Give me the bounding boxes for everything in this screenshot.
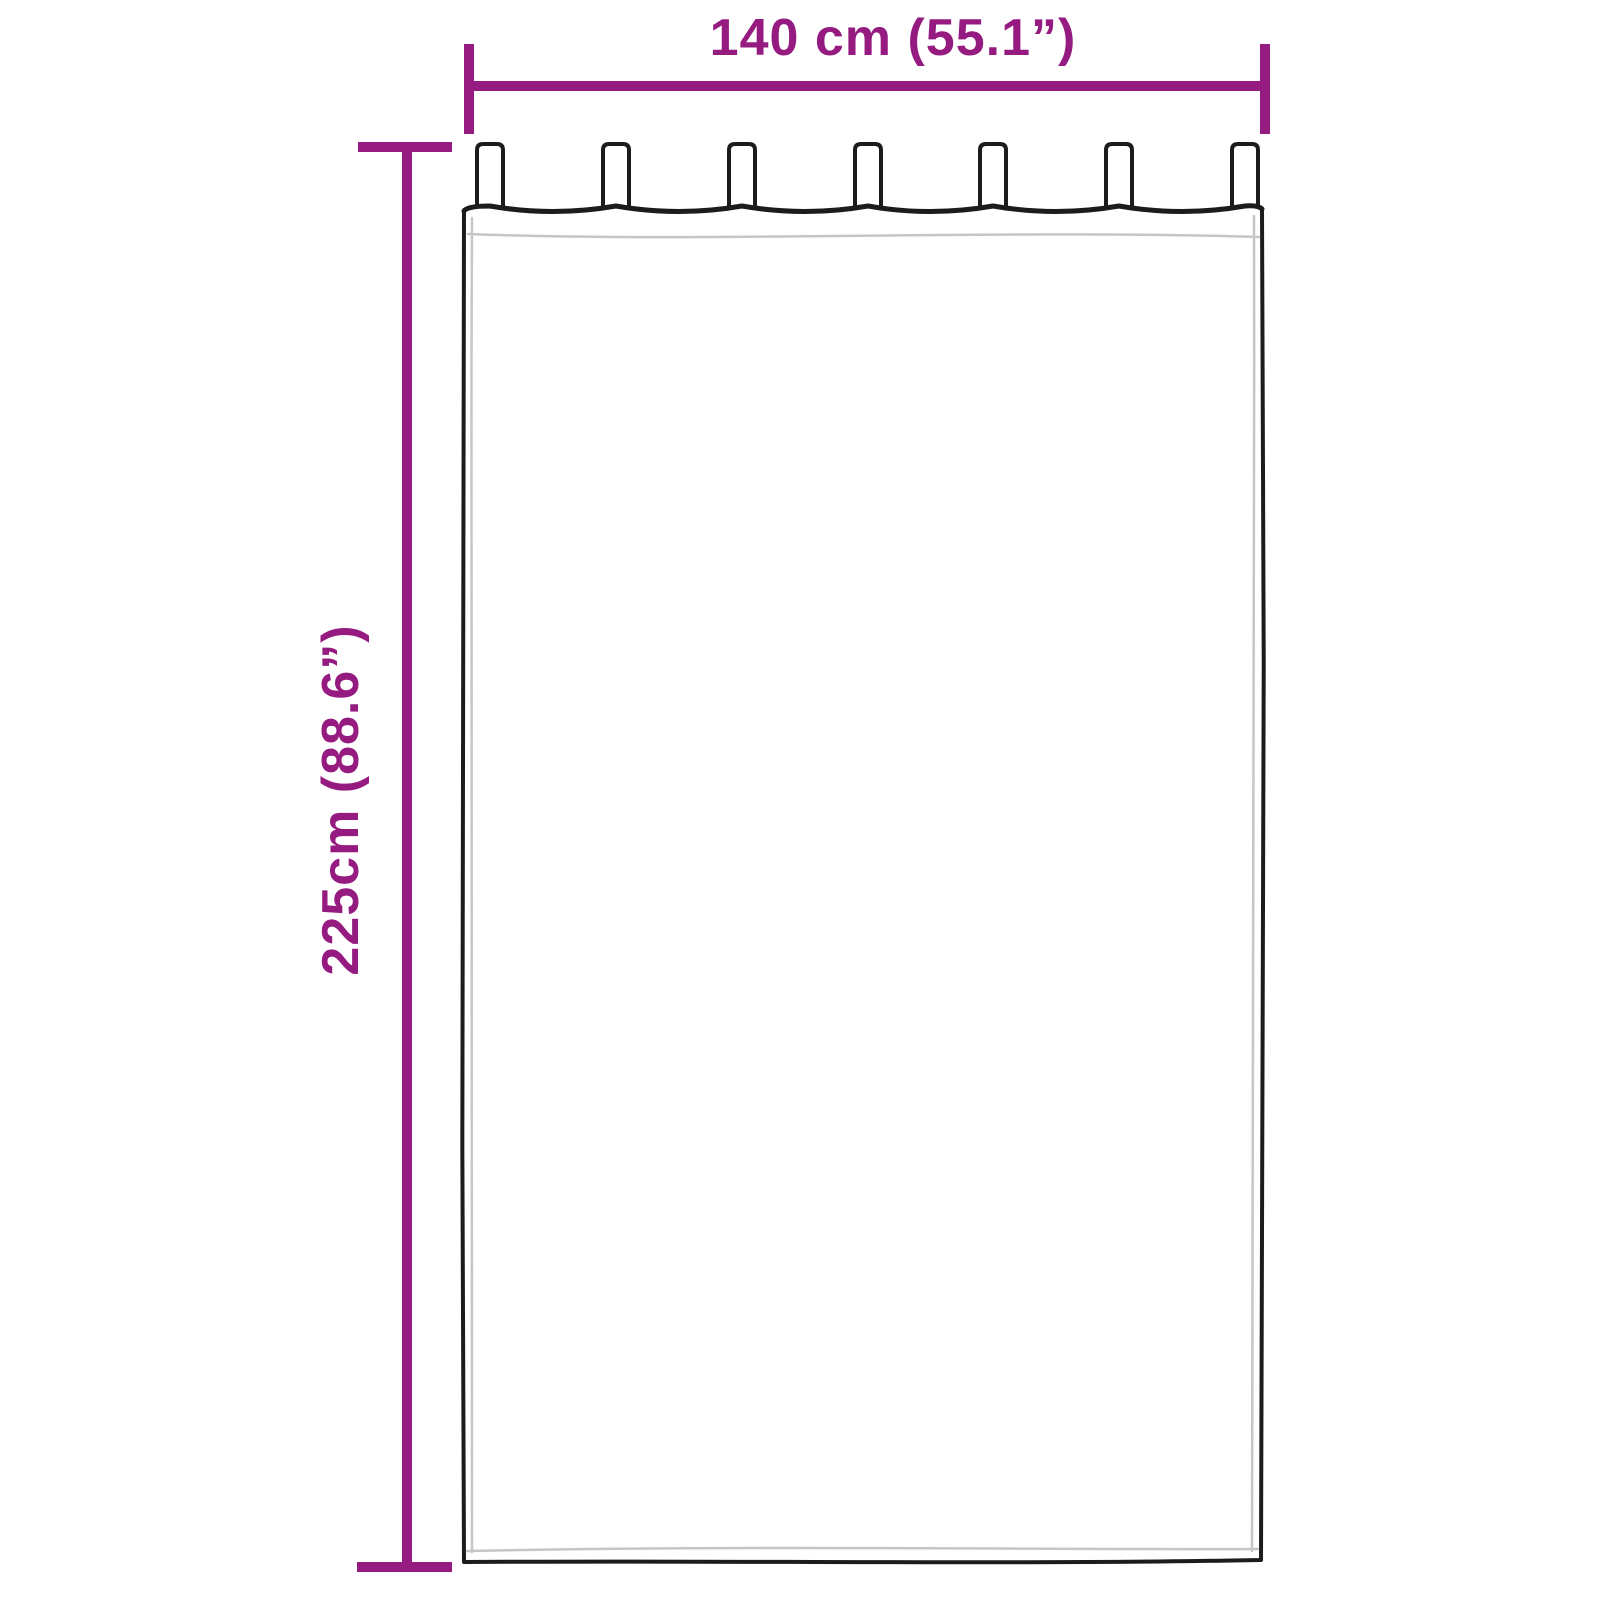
- width-dimension-tick-left: [464, 44, 474, 134]
- width-dimension-tick-right: [1260, 44, 1270, 134]
- curtain-panel: [462, 206, 1264, 1563]
- width-dimension-line: [467, 81, 1266, 91]
- height-dimension-line: [402, 147, 412, 1567]
- left-inner-edge-line: [471, 218, 472, 1552]
- height-dimension-tick-bottom: [357, 1562, 452, 1572]
- height-dimension-label: 225cm (88.6”): [311, 624, 371, 975]
- product-dimension-diagram: 140 cm (55.1”) 225cm (88.6”): [0, 0, 1600, 1600]
- curtain-drawing: [0, 0, 1600, 1600]
- height-dimension-tick-top: [358, 142, 452, 152]
- width-dimension-label: 140 cm (55.1”): [710, 8, 1077, 68]
